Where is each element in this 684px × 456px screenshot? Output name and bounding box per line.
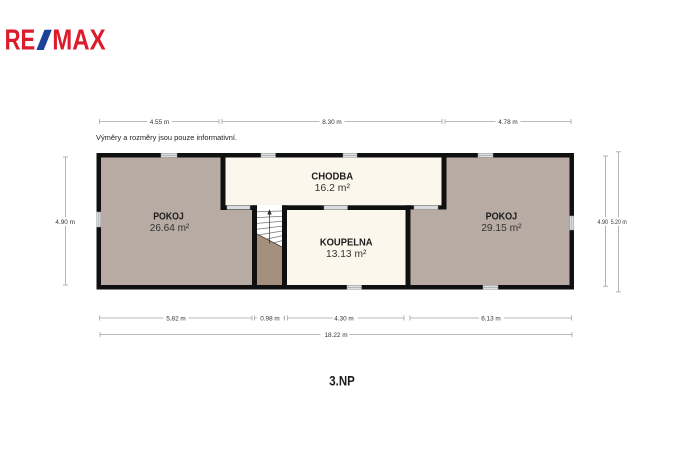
svg-text:Výměry a rozměry jsou pouze in: Výměry a rozměry jsou pouze informativní… xyxy=(96,135,237,142)
svg-text:13.13 m²: 13.13 m² xyxy=(326,248,367,260)
svg-text:3.NP: 3.NP xyxy=(329,373,355,389)
svg-text:KOUPELNA: KOUPELNA xyxy=(320,236,373,248)
svg-text:POKOJ: POKOJ xyxy=(153,211,184,223)
svg-text:5.82 m: 5.82 m xyxy=(166,315,186,322)
svg-text:0.98 m: 0.98 m xyxy=(260,315,280,322)
svg-text:29.15 m²: 29.15 m² xyxy=(481,222,522,234)
svg-text:16.2 m²: 16.2 m² xyxy=(315,182,351,194)
svg-text:4.30 m: 4.30 m xyxy=(334,315,354,322)
svg-text:5.20 m: 5.20 m xyxy=(611,219,627,226)
svg-text:8.30 m: 8.30 m xyxy=(322,119,342,126)
svg-text:6.13 m: 6.13 m xyxy=(481,315,501,322)
svg-text:CHODBA: CHODBA xyxy=(311,171,353,183)
svg-text:4.90: 4.90 xyxy=(598,219,609,226)
svg-text:4.78 m: 4.78 m xyxy=(498,119,518,126)
svg-text:MAX: MAX xyxy=(52,24,105,56)
svg-text:4.90 m: 4.90 m xyxy=(55,219,75,226)
svg-text:RE: RE xyxy=(5,24,36,56)
svg-text:POKOJ: POKOJ xyxy=(486,211,518,223)
svg-text:18.22 m: 18.22 m xyxy=(324,332,347,339)
svg-text:26.64 m²: 26.64 m² xyxy=(150,222,190,234)
svg-text:4.55 m: 4.55 m xyxy=(150,119,170,126)
